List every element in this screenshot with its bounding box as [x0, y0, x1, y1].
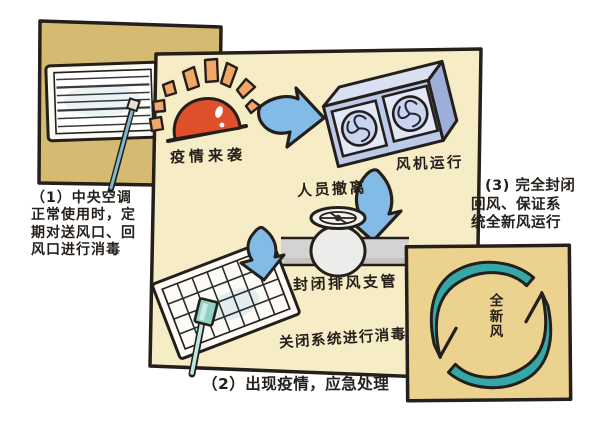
caption-step-1-line: 风口进行消毒	[31, 242, 161, 259]
caption-step-3-line: (3) 完全封闭	[485, 177, 587, 196]
caption-step-1-line: （1）中央空调	[31, 190, 161, 207]
alarm-label: 疫情来袭	[170, 146, 247, 167]
caption-step-1: （1）中央空调 正常使用时，定 期对送风口、回 风口进行消毒	[31, 190, 161, 259]
alarm-highlight-dot	[220, 123, 225, 128]
caption-step-1-line: 期对送风口、回	[31, 225, 161, 242]
fresh-air-label: 全新风	[488, 294, 505, 341]
valve-wheel-hub	[335, 215, 341, 221]
caption-step-3-line: 统全新风运行	[471, 214, 587, 233]
evacuate-label: 人员撤离	[297, 178, 368, 200]
caption-step-2: （2）出现疫情，应急处理	[202, 375, 389, 394]
infographic-canvas: （1）中央空调 正常使用时，定 期对送风口、回 风口进行消毒 疫情来袭 风机运行…	[0, 0, 600, 422]
caption-step-3: (3) 完全封闭 回风、保证系 统全新风运行	[471, 177, 587, 233]
fan-label: 风机运行	[396, 155, 465, 175]
valve-body	[311, 226, 365, 276]
sprayer-tip	[127, 98, 140, 111]
valve-label: 封闭排风支管	[293, 272, 399, 294]
caption-step-1-line: 正常使用时，定	[31, 207, 161, 224]
caption-step-3-line: 回风、保证系	[471, 196, 587, 215]
air-vent-icon	[46, 62, 161, 141]
